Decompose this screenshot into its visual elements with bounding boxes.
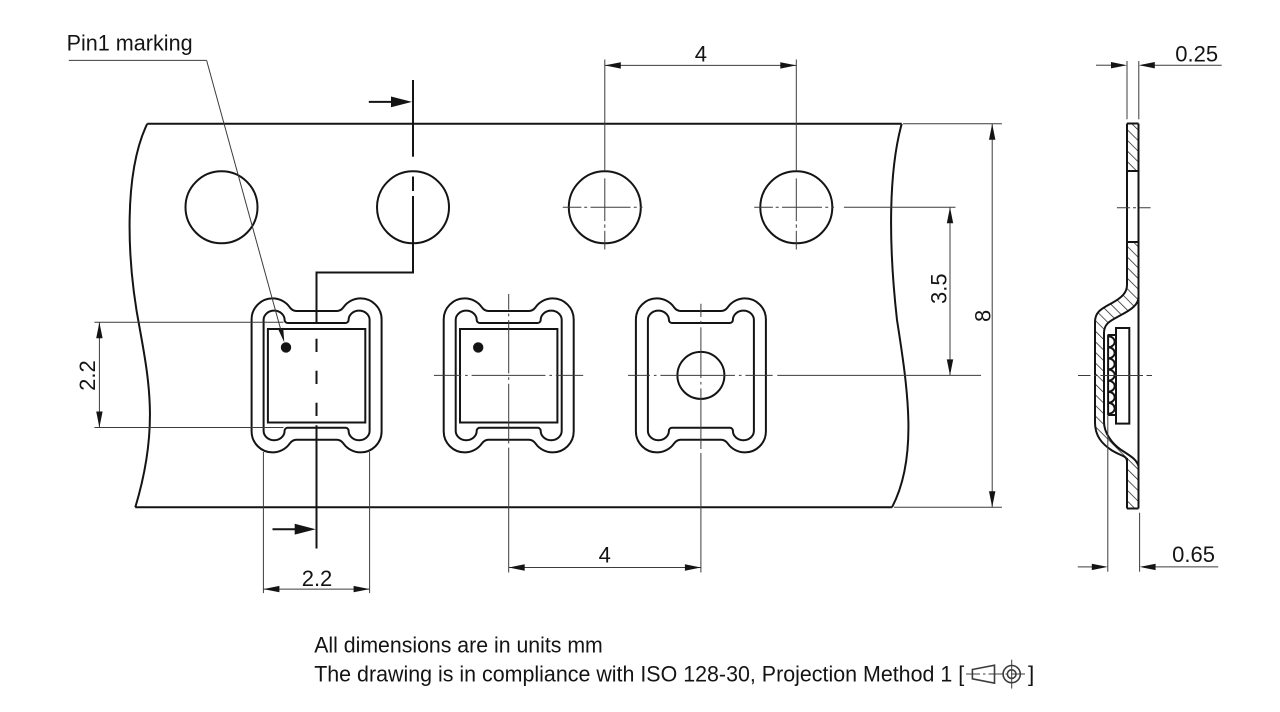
svg-text:4: 4 bbox=[695, 42, 707, 67]
svg-text:Pin1 marking: Pin1 marking bbox=[67, 30, 193, 55]
svg-text:]: ] bbox=[1028, 662, 1034, 687]
svg-text:4: 4 bbox=[599, 543, 611, 568]
svg-text:2.2: 2.2 bbox=[75, 360, 100, 391]
svg-text:2.2: 2.2 bbox=[302, 566, 333, 591]
svg-text:3.5: 3.5 bbox=[927, 273, 952, 304]
svg-text:0.25: 0.25 bbox=[1175, 42, 1218, 67]
svg-text:0.65: 0.65 bbox=[1172, 542, 1215, 567]
svg-text:All dimensions are in units mm: All dimensions are in units mm bbox=[314, 632, 603, 657]
svg-text:The drawing is in compliance w: The drawing is in compliance with ISO 12… bbox=[314, 662, 965, 687]
svg-text:8: 8 bbox=[970, 310, 995, 322]
